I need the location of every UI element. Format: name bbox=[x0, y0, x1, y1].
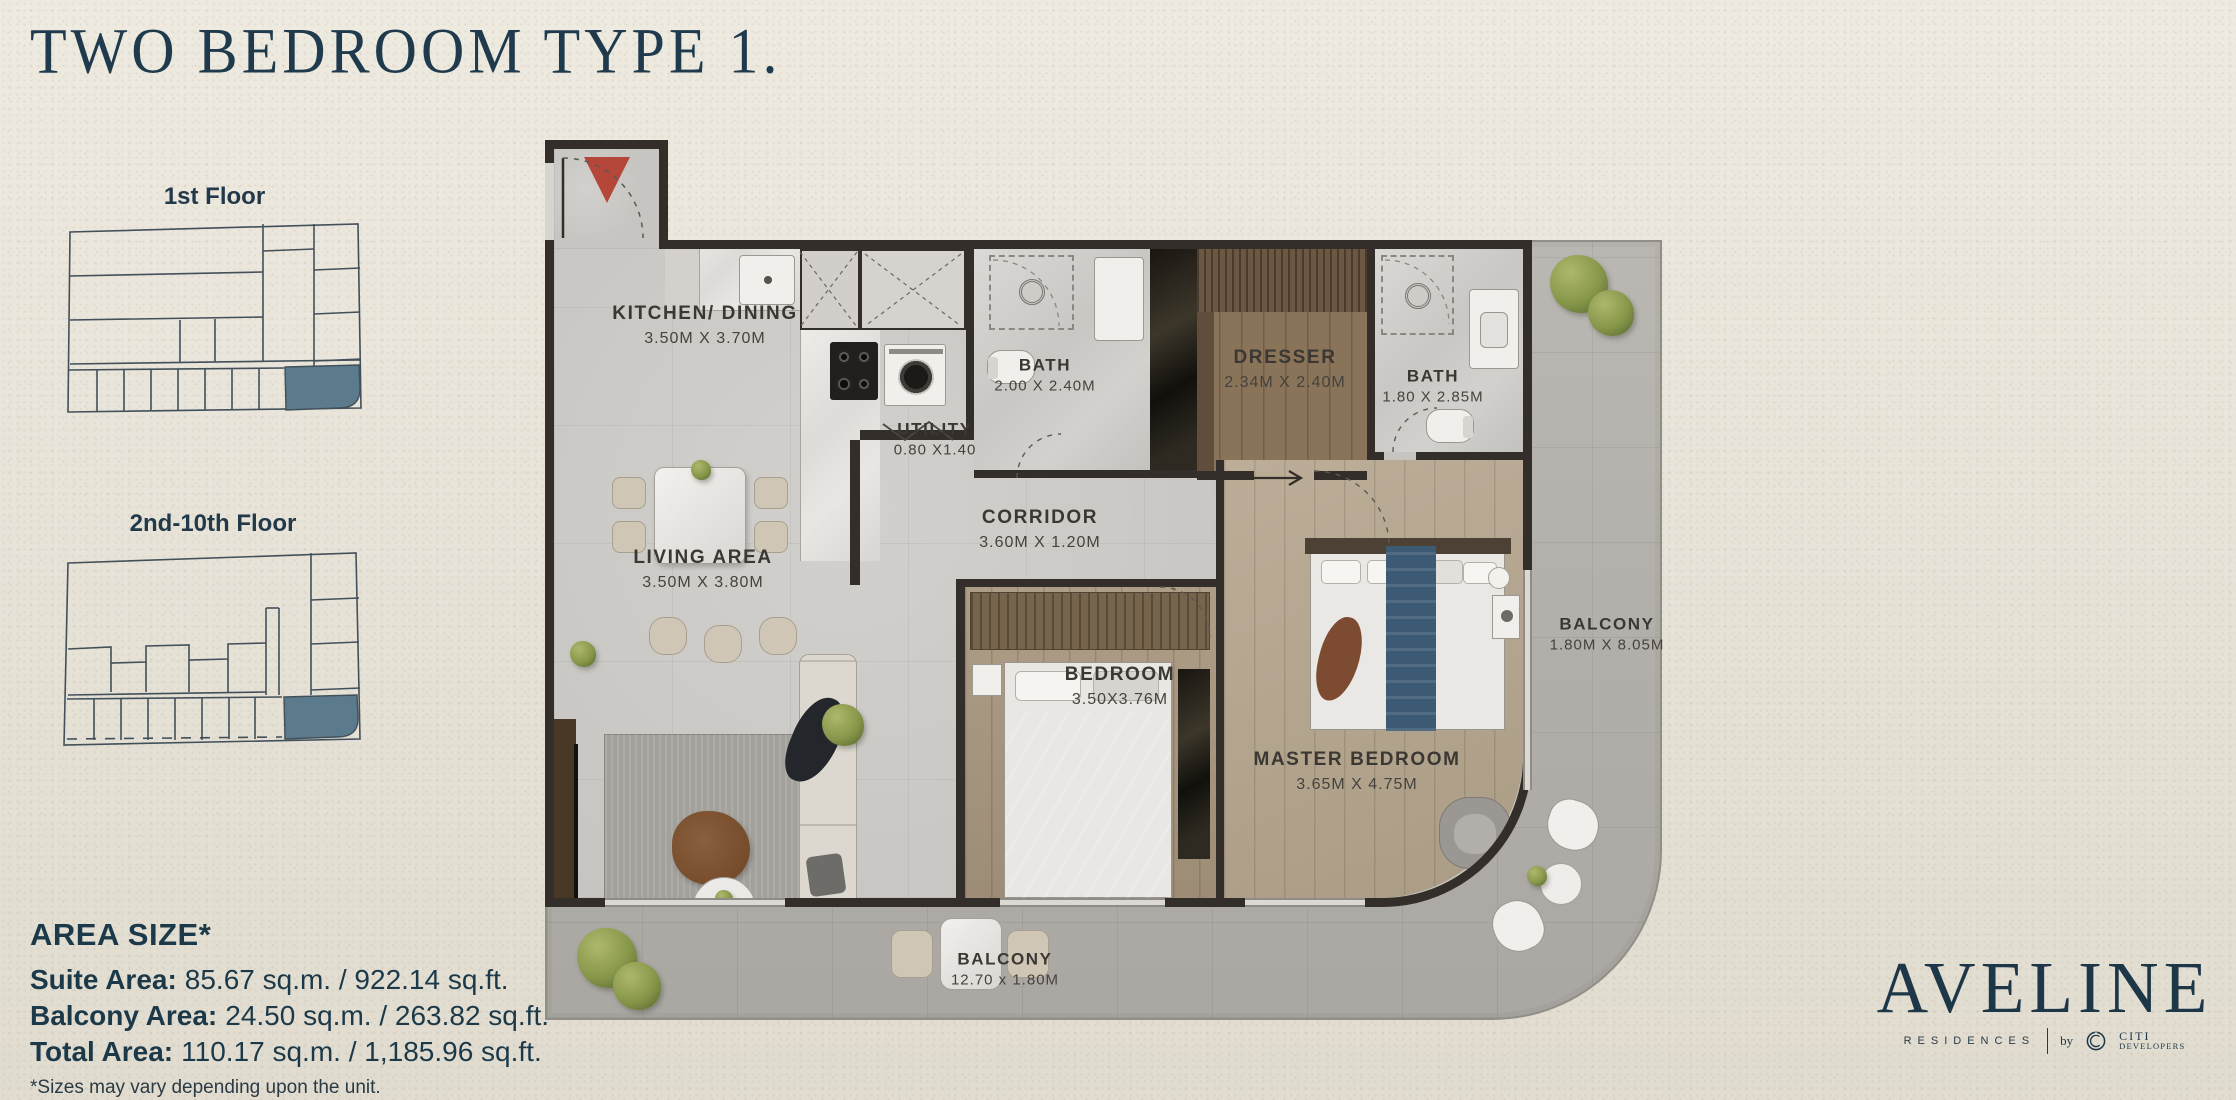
balcony-chair bbox=[891, 930, 933, 978]
floor-plan: KITCHEN/ DINING 3.50M X 3.70M LIVING ARE… bbox=[545, 140, 1663, 1024]
brand-developer: CITI DEVELOPERS bbox=[2119, 1030, 2185, 1052]
plant-icon bbox=[822, 704, 864, 746]
shaft-closet-2 bbox=[860, 249, 966, 330]
total-area-row: Total Area:110.17 sq.m. / 1,185.96 sq.ft… bbox=[30, 1034, 549, 1070]
plant-icon bbox=[570, 641, 596, 667]
washing-machine-icon bbox=[884, 344, 946, 406]
coffee-table-wood bbox=[672, 811, 750, 885]
floor-plate-diagram-first bbox=[65, 221, 365, 417]
shower-1 bbox=[989, 255, 1074, 330]
brand-divider bbox=[2047, 1028, 2048, 1054]
highlighted-unit bbox=[284, 695, 358, 739]
dresser-side-wardrobe bbox=[1197, 312, 1214, 480]
dried-plant-vase bbox=[1488, 567, 1510, 589]
highlighted-unit bbox=[285, 365, 360, 410]
brand-block: AVELINE RESIDENCES by CITI DEVELOPERS bbox=[1872, 950, 2217, 1054]
room-label-bath-2: BATH 1.80 X 2.85M bbox=[1382, 368, 1483, 407]
bush-icon bbox=[1588, 290, 1634, 336]
floor-map-first: 1st Floor bbox=[62, 185, 367, 417]
room-label-dresser: DRESSER 2.34M X 2.40M bbox=[1224, 348, 1346, 392]
brown-throw bbox=[1309, 612, 1369, 705]
toilet-2-icon bbox=[1426, 409, 1474, 443]
blue-runner bbox=[1386, 546, 1436, 731]
armchair bbox=[649, 617, 687, 655]
window bbox=[1000, 898, 1165, 907]
dining-chair bbox=[754, 477, 788, 509]
room-label-master-bedroom: MASTER BEDROOM 3.65M X 4.75M bbox=[1253, 750, 1460, 794]
hanging-clothes-rail bbox=[1197, 249, 1367, 312]
armchair bbox=[759, 617, 797, 655]
suite-area-row: Suite Area:85.67 sq.m. / 922.14 sq.ft. bbox=[30, 962, 549, 998]
bush-icon bbox=[613, 962, 661, 1010]
basin bbox=[1480, 312, 1508, 348]
tall-cabinet bbox=[665, 249, 700, 311]
vanity-1 bbox=[1094, 257, 1144, 341]
entry-door-gap bbox=[545, 163, 554, 240]
plant-icon bbox=[1527, 866, 1547, 886]
wardrobe-closet bbox=[1150, 249, 1197, 478]
faucet bbox=[764, 276, 772, 284]
entrance-arrow-icon bbox=[584, 157, 630, 203]
floor-map-upper: 2nd-10th Floor bbox=[58, 512, 368, 750]
kitchen-sink bbox=[739, 255, 795, 305]
cushion bbox=[805, 853, 846, 898]
area-size-heading: AREA SIZE* bbox=[30, 916, 549, 953]
armchair bbox=[704, 625, 742, 663]
area-size-footnote: *Sizes may vary depending upon the unit. bbox=[30, 1077, 549, 1099]
floor-map-first-label: 1st Floor bbox=[62, 185, 367, 209]
bedroom-marble-slab bbox=[1178, 669, 1210, 859]
washer-drum bbox=[898, 359, 934, 395]
shower-2 bbox=[1381, 255, 1454, 335]
brand-sub: RESIDENCES bbox=[1904, 1035, 2036, 1047]
master-armchair bbox=[1439, 797, 1511, 869]
window bbox=[1245, 898, 1365, 907]
table-plant bbox=[691, 460, 711, 480]
room-label-bath-1: BATH 2.00 X 2.40M bbox=[994, 357, 1095, 396]
lounge-table bbox=[1540, 863, 1582, 905]
entry-hall bbox=[545, 140, 668, 249]
page-title: TWO BEDROOM TYPE 1. bbox=[30, 14, 782, 89]
dining-chair bbox=[612, 477, 646, 509]
pillow bbox=[1321, 560, 1361, 584]
shaft-closet-1 bbox=[800, 249, 860, 330]
room-label-utility: UTILITY 0.80 X1.40 bbox=[894, 421, 977, 460]
shower-rose bbox=[1405, 283, 1431, 309]
bedroom-wardrobe bbox=[970, 592, 1210, 650]
washer-panel bbox=[889, 349, 943, 354]
page: { "title": "TWO BEDROOM TYPE 1.", "floor… bbox=[0, 0, 2236, 1100]
floor-map-upper-label: 2nd-10th Floor bbox=[58, 512, 368, 536]
stove-icon bbox=[830, 342, 878, 400]
vanity-2 bbox=[1469, 289, 1519, 369]
balcony-area-row: Balcony Area:24.50 sq.m. / 263.82 sq.ft. bbox=[30, 998, 549, 1034]
room-label-balcony-bottom: BALCONY 12.70 x 1.80M bbox=[951, 951, 1059, 990]
master-side-cabinet bbox=[1492, 595, 1520, 639]
window bbox=[605, 898, 785, 907]
area-size-block: AREA SIZE* Suite Area:85.67 sq.m. / 922.… bbox=[30, 916, 549, 1099]
room-label-corridor: CORRIDOR 3.60M X 1.20M bbox=[979, 508, 1101, 552]
room-label-balcony-side: BALCONY 1.80M X 8.05M bbox=[1550, 616, 1665, 655]
nightstand bbox=[972, 664, 1002, 696]
brand-wordmark: AVELINE bbox=[1869, 950, 2221, 1027]
room-label-bedroom: BEDROOM 3.50X3.76M bbox=[1065, 665, 1175, 709]
toilet-tank bbox=[1463, 416, 1473, 438]
window bbox=[1523, 570, 1532, 790]
citi-developers-logo-icon bbox=[2085, 1030, 2107, 1052]
master-bed bbox=[1310, 545, 1505, 730]
tv bbox=[574, 744, 578, 907]
brand-by: by bbox=[2060, 1033, 2073, 1049]
duvet bbox=[1005, 711, 1171, 899]
tv-console bbox=[554, 719, 576, 907]
room-label-kitchen-dining: KITCHEN/ DINING 3.50M X 3.70M bbox=[612, 304, 798, 348]
room-label-living-area: LIVING AREA 3.50M X 3.80M bbox=[633, 548, 772, 592]
floor-plate-diagram-upper bbox=[61, 548, 366, 750]
lamp bbox=[1501, 610, 1513, 622]
chair-cushion bbox=[1454, 814, 1496, 854]
sofa bbox=[799, 654, 857, 907]
shower-rose bbox=[1019, 279, 1045, 305]
